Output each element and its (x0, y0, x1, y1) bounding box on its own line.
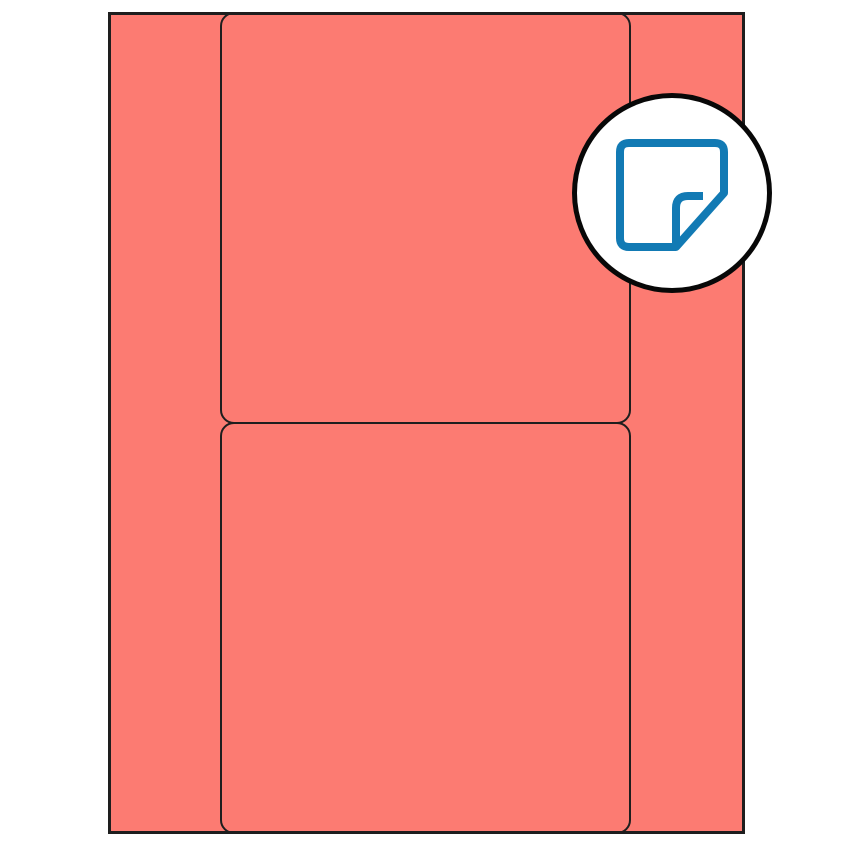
sticky-note-icon (612, 135, 732, 255)
label-sheet-preview (0, 0, 850, 850)
label-outline-bottom (220, 422, 631, 834)
material-badge (572, 93, 772, 293)
label-outline-top (220, 12, 631, 424)
